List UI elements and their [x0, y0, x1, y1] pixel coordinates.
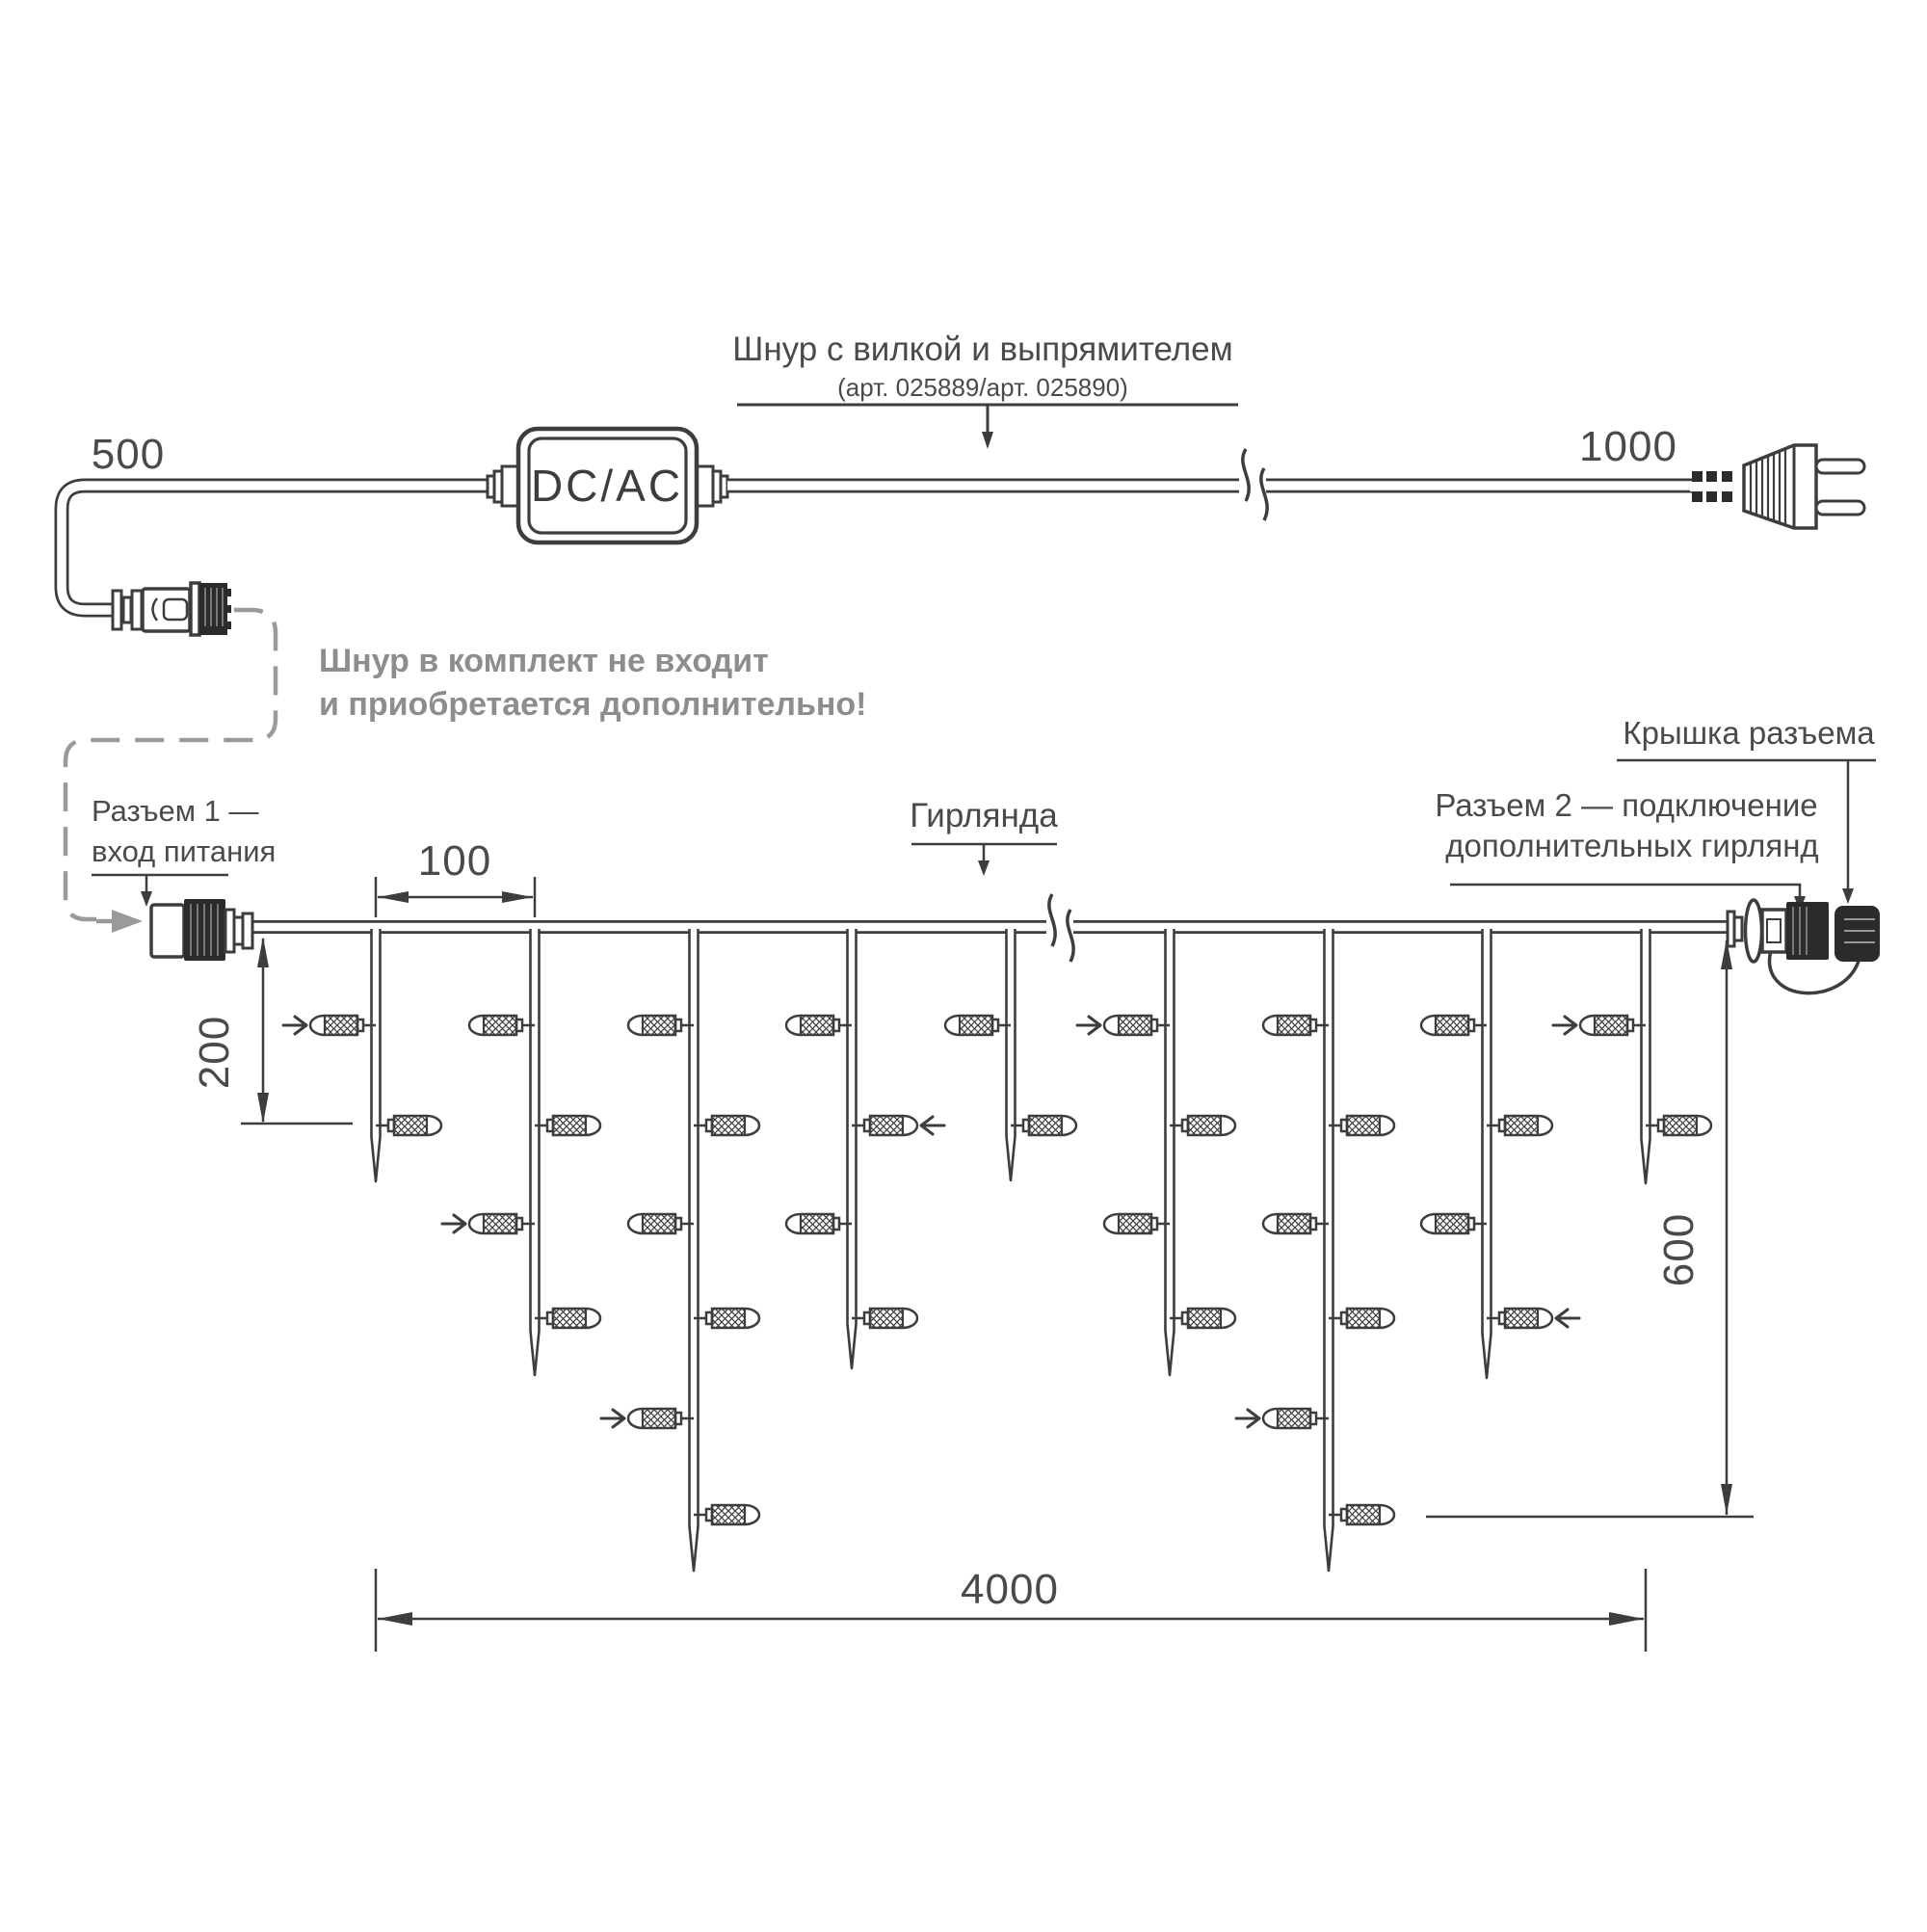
power-plug	[1690, 441, 1864, 532]
arrow-left-icon	[378, 891, 409, 903]
arrow-down-icon	[978, 860, 990, 876]
led-lamp-icon	[1487, 1116, 1552, 1135]
direction-arrow-icon	[1556, 1310, 1579, 1327]
led-lamp-icon	[786, 1214, 852, 1233]
connector2-label-group: Разъем 2 — подключение дополнительных ги…	[1435, 787, 1818, 912]
cord-break-icon	[1261, 468, 1267, 520]
led-lamp-icon	[852, 1309, 917, 1328]
led-lamp-icon	[1421, 1016, 1487, 1035]
arrow-down-icon	[141, 891, 152, 907]
connector2-label-line1: Разъем 2 — подключение	[1435, 787, 1817, 823]
led-lamp-icon	[694, 1505, 759, 1524]
icicle-drop	[1104, 929, 1235, 1375]
led-lamp-icon	[628, 1409, 694, 1428]
garland-connector-1	[151, 899, 252, 961]
arrow-down-icon	[1842, 888, 1854, 904]
icicle-drop	[310, 929, 441, 1181]
drop-wire	[1166, 929, 1175, 1375]
connector-cap	[1835, 906, 1880, 962]
dim-600-label: 600	[1655, 1213, 1703, 1286]
icicle-drop	[628, 929, 759, 1571]
connector2-label-line2: дополнительных гирлянд	[1445, 828, 1818, 863]
arrow-right-icon	[1609, 1612, 1644, 1626]
arrow-up-icon	[257, 937, 269, 967]
drop-wire	[1483, 929, 1491, 1378]
dim-1000-label: 1000	[1579, 423, 1677, 470]
cord-not-included-note-line1: Шнур в комплект не входит	[319, 643, 769, 679]
icicle-drop	[1263, 929, 1394, 1571]
led-lamp-icon	[1104, 1214, 1170, 1233]
led-lamp-icon	[1011, 1116, 1076, 1135]
dc-cord	[62, 486, 489, 610]
dim-200-label: 200	[191, 1016, 238, 1089]
wire-break-icon	[1068, 910, 1073, 962]
led-lamp-icon	[1263, 1016, 1329, 1035]
led-lamp-icon	[1329, 1505, 1394, 1524]
power-cord-label: Шнур с вилкой и выпрямителем	[732, 331, 1232, 368]
connector1-label-line1: Разъем 1 —	[92, 794, 258, 828]
led-lamp-icon	[535, 1116, 600, 1135]
led-lamp-icon	[1421, 1214, 1487, 1233]
direction-arrow-icon	[442, 1215, 465, 1232]
led-lamp-icon	[628, 1214, 694, 1233]
led-lamp-icon	[1263, 1214, 1329, 1233]
power-flow-arrow-icon	[112, 910, 143, 933]
strain-relief-detail	[1690, 482, 1734, 491]
cap-label: Крышка разъема	[1623, 715, 1875, 751]
icicle-drop	[786, 929, 917, 1368]
direction-arrow-icon	[1077, 1017, 1100, 1034]
led-lamp-icon	[376, 1116, 441, 1135]
arrow-left-icon	[378, 1612, 412, 1626]
led-lamp-icon	[469, 1016, 535, 1035]
dcac-label: DC/AC	[531, 461, 683, 511]
cord-not-included-note-line2: и приобретается дополнительно!	[319, 686, 867, 723]
direction-arrow-icon	[601, 1410, 624, 1427]
connector1-label-group: Разъем 1 — вход питания	[92, 794, 276, 907]
dimension-4000: 4000	[376, 1566, 1646, 1652]
led-lamp-icon	[535, 1309, 600, 1328]
connector1-label-line2: вход питания	[92, 834, 276, 868]
arrow-down-icon	[257, 1093, 269, 1124]
led-lamp-icon	[310, 1016, 376, 1035]
garland-label: Гирлянда	[910, 797, 1058, 834]
icicle-garland-diagram-page: Шнур с вилкой и выпрямителем (арт. 02588…	[0, 0, 1927, 1927]
cord-break-icon	[1243, 449, 1249, 501]
wire-break-icon	[1049, 894, 1055, 946]
diagram-svg: Шнур с вилкой и выпрямителем (арт. 02588…	[0, 0, 1927, 1927]
led-lamp-icon	[469, 1214, 535, 1233]
icicle-drop	[945, 929, 1076, 1180]
dcac-converter-box: DC/AC	[488, 429, 727, 543]
icicle-drop	[1421, 929, 1552, 1378]
dc-output-connector	[113, 583, 231, 635]
direction-arrow-icon	[283, 1017, 306, 1034]
led-lamp-icon	[694, 1309, 759, 1328]
led-lamp-icon	[628, 1016, 694, 1035]
drops-layer	[283, 929, 1711, 1571]
power-cord-articles: (арт. 025889/арт. 025890)	[837, 373, 1128, 402]
led-lamp-icon	[1646, 1116, 1711, 1135]
dim-4000-label: 4000	[961, 1566, 1059, 1613]
led-lamp-icon	[694, 1116, 759, 1135]
arrow-right-icon	[502, 891, 533, 903]
drop-wire	[1642, 929, 1650, 1183]
icicle-drop	[1580, 929, 1711, 1183]
power-cord-label-group: Шнур с вилкой и выпрямителем (арт. 02588…	[732, 331, 1238, 449]
drop-wire	[372, 929, 381, 1181]
icicle-drop	[469, 929, 600, 1375]
plug-prong-icon	[1816, 501, 1864, 515]
led-lamp-icon	[1263, 1409, 1329, 1428]
direction-arrow-icon	[1553, 1017, 1576, 1034]
arrow-down-icon	[982, 432, 993, 449]
plug-cord	[727, 449, 1692, 520]
hanging-loop-icon	[1746, 900, 1762, 962]
drop-wire	[531, 929, 540, 1375]
drop-wire	[1007, 929, 1016, 1180]
plug-prong-icon	[1816, 460, 1864, 473]
led-lamp-icon	[1487, 1309, 1552, 1328]
led-lamp-icon	[1580, 1016, 1646, 1035]
drop-wire	[848, 929, 857, 1368]
led-lamp-icon	[1329, 1309, 1394, 1328]
garland-label-group: Гирлянда	[910, 797, 1058, 876]
led-lamp-icon	[1329, 1116, 1394, 1135]
dashed-power-path	[66, 610, 276, 933]
led-lamp-icon	[1104, 1016, 1170, 1035]
dim-500-label: 500	[92, 431, 165, 478]
direction-arrow-icon	[1236, 1410, 1259, 1427]
direction-arrow-icon	[921, 1117, 944, 1134]
garland-connector-2	[1728, 900, 1880, 993]
led-lamp-icon	[1170, 1309, 1235, 1328]
dim-100-label: 100	[418, 837, 491, 885]
led-lamp-icon	[786, 1016, 852, 1035]
led-lamp-icon	[1170, 1116, 1235, 1135]
garland-wire	[252, 894, 1729, 962]
arrow-down-icon	[1721, 1484, 1732, 1515]
led-lamp-icon	[852, 1116, 917, 1135]
led-lamp-icon	[945, 1016, 1011, 1035]
dimension-100: 100	[376, 837, 535, 917]
